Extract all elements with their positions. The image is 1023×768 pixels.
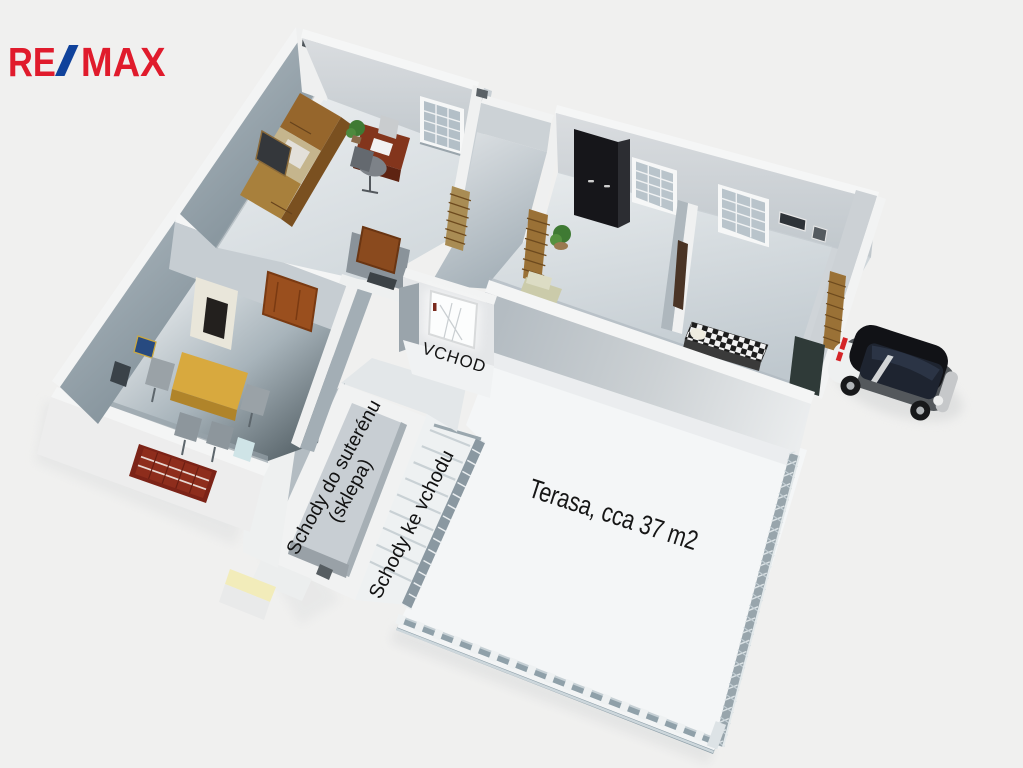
svg-text:RE: RE: [8, 40, 56, 85]
svg-text:MAX: MAX: [81, 40, 166, 86]
